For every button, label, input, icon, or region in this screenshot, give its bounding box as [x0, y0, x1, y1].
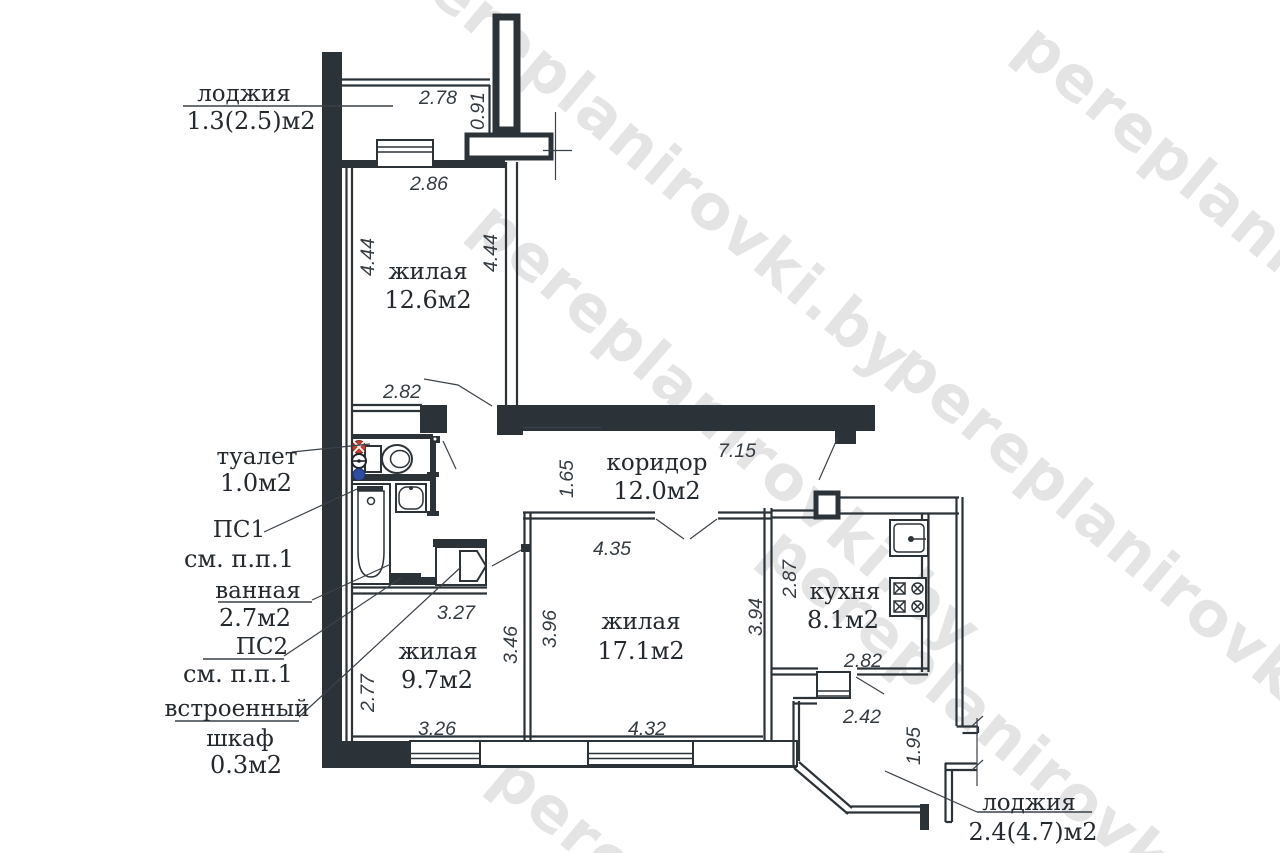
loggia-tl-area: 1.3(2.5)м2 [187, 107, 316, 135]
dim-4-44-left: 4.44 [357, 238, 379, 276]
kitchen-sink-fixture [890, 520, 928, 556]
watermark-text: pereplanirovki.by [1002, 8, 1280, 482]
room-12-6-door-swing [424, 379, 492, 406]
toilet-label: туалет [217, 444, 298, 470]
dim-2-82-kitchen: 2.82 [843, 650, 882, 672]
ps1-riser-bar [357, 486, 383, 491]
dim-3-46: 3.46 [500, 626, 522, 664]
ps1-note: см. п.п.1 [184, 545, 294, 573]
kitchen-notch [816, 493, 838, 517]
room-17-1-label: жилая [601, 609, 680, 635]
pillar [496, 17, 517, 130]
bathroom-sink-fixture [396, 484, 426, 512]
room-17-1-door-swing [656, 519, 684, 539]
dim-3-26: 3.26 [418, 718, 456, 740]
kitchen-stove-fixture [890, 578, 926, 616]
closet-area: 0.3м2 [210, 751, 282, 779]
riser-symbols [352, 441, 366, 481]
kitchen-area: 8.1м2 [807, 606, 879, 634]
ps2-note: см. п.п.1 [183, 660, 293, 688]
loggia-tl-label: лоджия [197, 81, 291, 107]
wall-pier [693, 741, 797, 766]
room-9-7-area: 9.7м2 [401, 666, 473, 694]
dim-2-86: 2.86 [409, 173, 448, 195]
cold-water-riser-icon [353, 469, 365, 481]
bathroom-label: ванная [215, 578, 301, 604]
dim-0-91: 0.91 [467, 92, 489, 130]
dim-2-87: 2.87 [779, 559, 801, 599]
toilet-fixture [365, 445, 412, 473]
dim-2-78: 2.78 [418, 87, 457, 109]
room-17-1-door-swing [690, 519, 717, 539]
dim-2-77: 2.77 [357, 673, 379, 713]
corridor-label: коридор [606, 450, 707, 476]
loggia-br-area: 2.4(4.7)м2 [969, 818, 1098, 846]
ps2-label: ПС2 [236, 634, 288, 660]
dim-1-65: 1.65 [556, 460, 578, 498]
floor-plan-page: pereplanirovki.by pereplanirovki.by pere… [0, 0, 1280, 853]
bathroom-area: 2.7м2 [219, 604, 291, 632]
loggia-br-label: лоджия [982, 790, 1076, 816]
closet-label-line1: встроенный [164, 696, 309, 722]
corridor-area: 12.0м2 [613, 477, 700, 505]
dim-7-15: 7.15 [718, 440, 756, 462]
ps2-riser-bar [389, 573, 421, 579]
wall-block [467, 135, 551, 158]
ps2-leader [284, 578, 401, 656]
dim-3-96: 3.96 [539, 610, 561, 648]
dim-4-35: 4.35 [593, 538, 631, 560]
bathtub-fixture [352, 484, 390, 584]
floor-plan-drawing: pereplanirovki.by pereplanirovki.by pere… [0, 0, 1280, 853]
dim-2-42: 2.42 [842, 706, 881, 728]
wall-pier [480, 741, 588, 766]
kitchen-balcony-door-block [817, 672, 850, 698]
kitchen-balcony-door-swing [856, 677, 884, 694]
kitchen-label: кухня [810, 579, 881, 605]
toilet-door-swing [443, 441, 456, 469]
dim-3-94: 3.94 [745, 598, 767, 636]
dim-3-27: 3.27 [437, 602, 476, 624]
room-12-6-label: жилая [388, 259, 467, 285]
closet-label-line2: шкаф [206, 726, 273, 752]
dim-2-82-room: 2.82 [382, 381, 421, 403]
dim-4-44-right: 4.44 [480, 234, 502, 272]
left-outer-wall [322, 52, 342, 768]
room-17-1-area: 17.1м2 [597, 637, 684, 665]
balcony-window-block [377, 140, 433, 167]
bathroom-door-swing [492, 549, 523, 566]
ps1-label: ПС1 [213, 517, 265, 543]
dim-4-32: 4.32 [628, 718, 666, 740]
dim-1-95: 1.95 [903, 727, 925, 765]
room-9-7-label: жилая [398, 639, 477, 665]
room-12-6-area: 12.6м2 [384, 286, 471, 314]
toilet-area: 1.0м2 [220, 469, 292, 497]
